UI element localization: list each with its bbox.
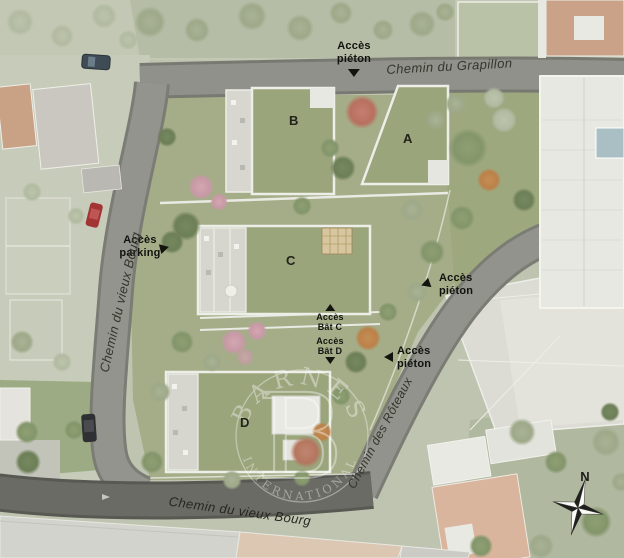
- access-line: Accès: [439, 272, 473, 285]
- white-residence: [540, 76, 624, 308]
- site-plan: BARNES B INTERNATIONAL N Accès piéton Ch…: [0, 0, 624, 558]
- access-line: Accès: [316, 312, 344, 322]
- aerial-render: BARNES B INTERNATIONAL N: [0, 0, 624, 558]
- access-bat-cd-label: Accès Bât C Accès Bât D: [316, 304, 344, 364]
- building-b-roof: [226, 88, 334, 194]
- pool: [596, 128, 624, 158]
- building-d-label: D: [240, 415, 249, 430]
- access-pieton-mid-label: Accès piéton: [439, 272, 473, 299]
- access-line: Accès: [316, 336, 344, 346]
- access-pieton-low-label: Accès piéton: [397, 345, 431, 372]
- building-c-roof: [198, 226, 370, 314]
- compass-north-label: N: [580, 469, 589, 484]
- car-dark-bottom: [81, 414, 97, 443]
- top-lawn-plot: [458, 2, 540, 60]
- building-a-label: A: [403, 131, 412, 146]
- arrow-left-icon: [384, 352, 393, 362]
- arrow-down-icon: [325, 357, 335, 364]
- building-c-label: C: [286, 253, 295, 268]
- access-line: piéton: [397, 358, 431, 371]
- arrow-up-icon: [325, 304, 335, 311]
- access-line: Bât C: [316, 322, 344, 332]
- building-b-label: B: [289, 113, 298, 128]
- access-line: piéton: [439, 285, 473, 298]
- access-line: Accès: [337, 40, 371, 53]
- arrow-down-icon: [348, 69, 360, 77]
- access-line: Accès: [397, 345, 431, 358]
- access-line: piéton: [337, 53, 371, 66]
- access-pieton-top-label: Accès piéton: [337, 40, 371, 77]
- pergola: [322, 228, 352, 254]
- access-line: Bât D: [316, 346, 344, 356]
- car-dark-top: [82, 54, 111, 70]
